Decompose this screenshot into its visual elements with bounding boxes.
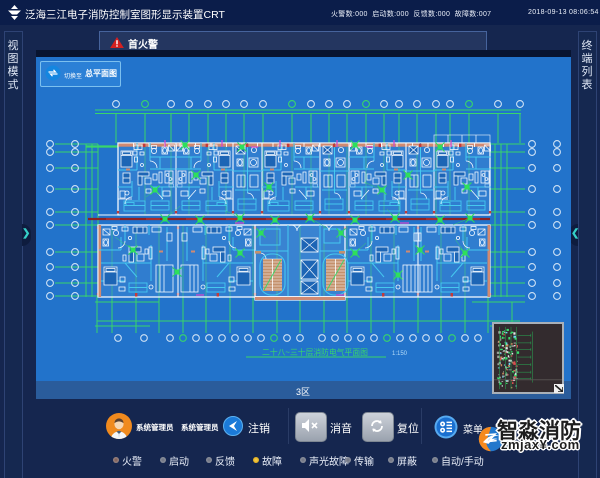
svg-text:二十八~三十层消防电气平面图: 二十八~三十层消防电气平面图 xyxy=(262,347,368,357)
svg-text:1:150: 1:150 xyxy=(392,351,408,357)
